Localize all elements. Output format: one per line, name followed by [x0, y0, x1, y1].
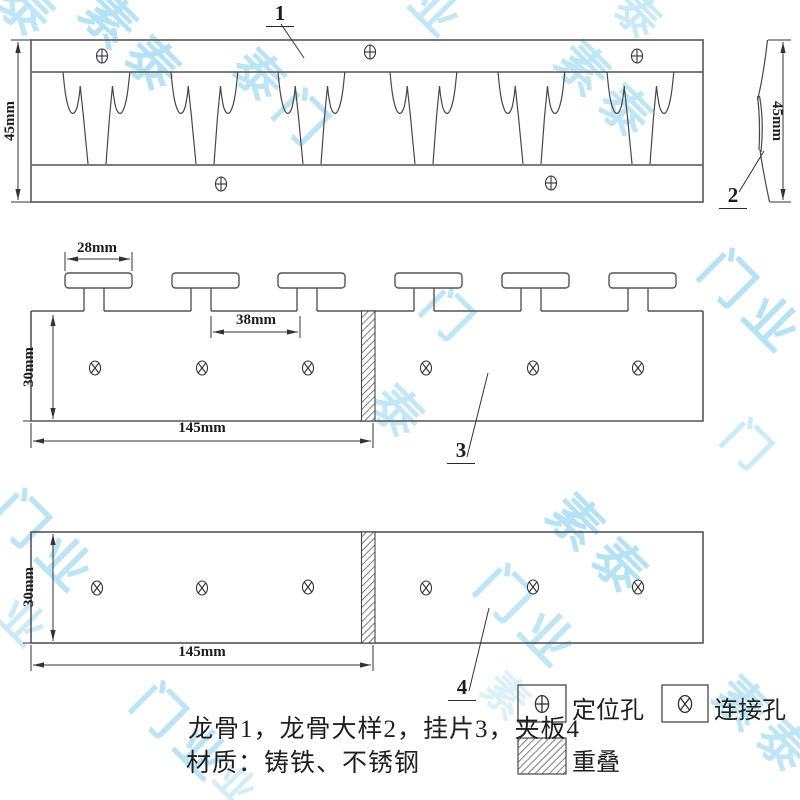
caption-material: 材质：铸铁、不锈钢	[186, 743, 606, 779]
dim-text-plate-height: 30mm	[21, 564, 37, 610]
part-label-keel-side: 2	[719, 183, 747, 209]
part-label-keel: 1	[266, 1, 294, 27]
dim-text-hanger-length: 145mm	[166, 420, 238, 437]
dim-text-t-top-width: 28mm	[69, 240, 125, 257]
legend-label-connection-hole: 连接孔	[714, 690, 800, 725]
keel-side-detail	[758, 40, 770, 202]
drawing-canvas	[0, 0, 800, 800]
dim-text-keel-height: 45mm	[2, 98, 18, 144]
keel-top-view	[31, 40, 703, 202]
dim-text-keel-side-height: 45mm	[769, 98, 785, 144]
clamp-plate-view	[23, 532, 703, 643]
overlap-strip-hanger	[362, 311, 376, 421]
dim-text-plate-length: 145mm	[166, 644, 238, 661]
dim-text-t-spacing: 38mm	[228, 312, 284, 329]
technical-drawing-page: 泰素泰泰门业泰素泰门业门泰门门业业素泰门业门业素泰素业	[0, 0, 800, 800]
part-label-clamp-plate: 4	[448, 675, 476, 701]
dim-text-hanger-height: 30mm	[21, 344, 37, 390]
caption-parts: 龙骨1，龙骨大样2，挂片3，夹板4	[188, 709, 608, 745]
overlap-strip-plate	[362, 532, 376, 643]
part-label-hanger: 3	[447, 438, 475, 464]
part-label-leaders	[281, 24, 764, 691]
hanger-profile-view	[23, 273, 703, 421]
connection-hole-icon	[678, 696, 691, 713]
